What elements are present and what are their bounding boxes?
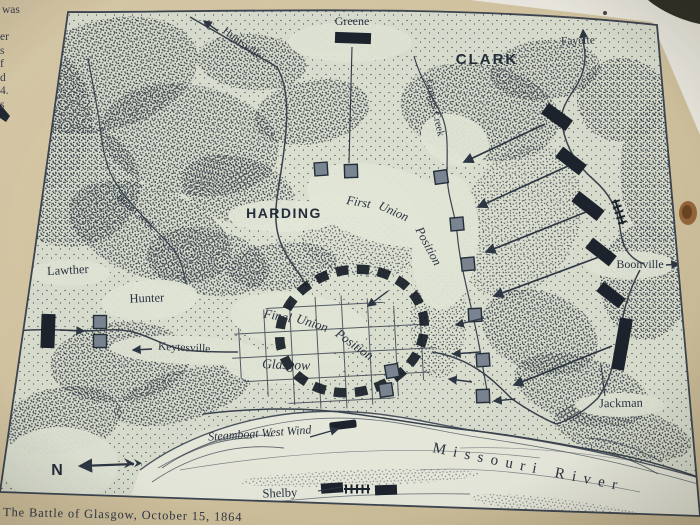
photo-vignette <box>0 0 700 525</box>
battle-map-photo: was er s f d 4. s The Battle of Glasgow,… <box>0 0 700 525</box>
sign-photo: was er s f d 4. s The Battle of Glasgow,… <box>0 0 700 525</box>
